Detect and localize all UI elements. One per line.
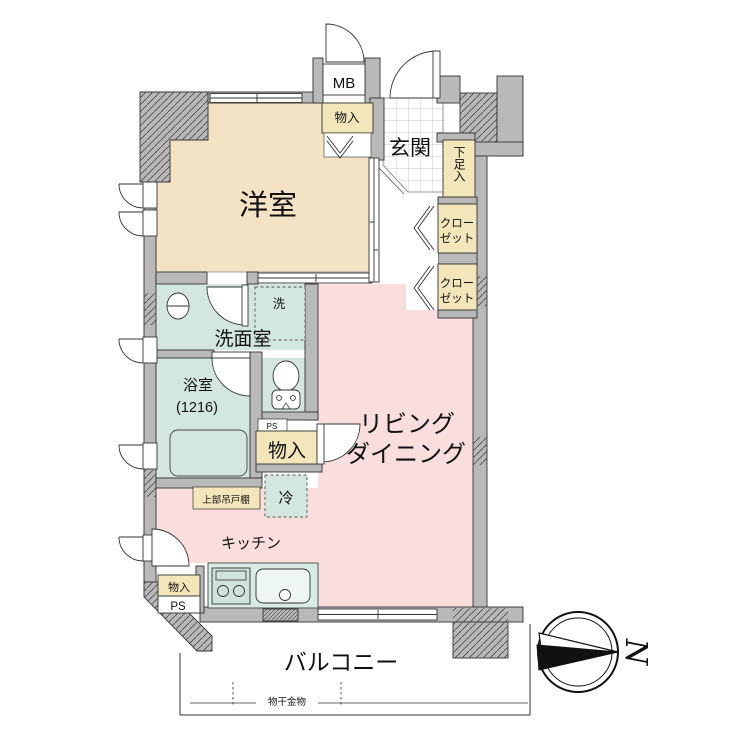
fridge-space-label: 冷 [278,490,293,507]
western-room-label: 洋室 [239,189,297,222]
wall-bathroom-bottom [156,478,262,488]
pipe-space-lower-label: PS [170,601,186,613]
compass-north-label: N [618,638,653,667]
closet1-label-line1: クロー [440,217,475,230]
wall-bathroom-top [156,350,214,358]
wall-washroom-right [305,284,318,420]
kitchen-label: キッチン [221,535,281,552]
hatch-bottom-right [453,608,508,658]
closet2-label-line1: クロー [440,277,475,290]
entrance-door-panel [433,51,440,98]
living-dining-label-line1: リビング [359,411,455,438]
wall-bedroom-bottom-mid [247,272,258,284]
stove-icon [212,568,250,604]
bathroom-size-label: (1216) [176,400,218,416]
kitchen-storage-label: 物入 [168,580,190,594]
floor-plan-svg: 洋室 玄関 下足入 クロー ゼット クロー ゼット MB 物入 洗 洗面室 浴室… [0,0,750,750]
wall-bedroom-bottom-left [156,272,207,284]
shoe-cabinet-label: 下足入 [452,146,466,182]
bathroom-door-panel [212,352,250,358]
bedroom-storage-label: 物入 [334,111,360,125]
laundry-hardware-label: 物干金物 [268,696,307,708]
toilet-icon [272,361,300,409]
closet2-label-line2: ゼット [440,292,475,305]
entrance-door[interactable] [390,51,437,98]
bedroom-storage-door-area [324,133,371,157]
entrance-label: 玄関 [389,137,431,160]
bathtub-icon [170,430,247,476]
washroom-door-panel [242,285,248,326]
closet1-label-line2: ゼット [440,232,475,245]
hall-storage-door-panel [317,424,324,464]
living-dining-label-line2: ダイニング [346,441,466,468]
hall-storage-label: 物入 [268,440,306,462]
mb-door[interactable] [326,24,364,62]
wall-below-storage [256,464,322,472]
meter-box-label: MB [333,75,356,92]
wall-closet-sep2 [438,253,477,264]
wall-mb-right [365,58,380,103]
hatch-left-1 [144,293,156,325]
pipe-space-upper-label: PS [267,422,278,431]
wall-right-step [473,142,523,156]
hatch-left-2 [144,470,156,497]
hatch-right-2 [473,437,487,465]
wall-mb-left [313,58,323,103]
balcony-label: バルコニー [284,649,399,675]
wall-closet-sep1 [438,197,477,204]
sink-icon [256,569,310,603]
compass [537,612,618,692]
washroom-label: 洗面室 [214,328,271,350]
louver-vent [263,609,298,621]
bathroom-label: 浴室 [183,377,213,394]
wall-entry-pillar [437,76,460,103]
floor-plan-canvas: 洋室 玄関 下足入 クロー ゼット クロー ゼット MB 物入 洗 洗面室 浴室… [0,0,750,750]
upper-cabinet-label: 上部吊戸棚 [202,494,250,506]
wall-closet-sep3 [438,310,477,318]
washer-space-label: 洗 [273,297,286,311]
